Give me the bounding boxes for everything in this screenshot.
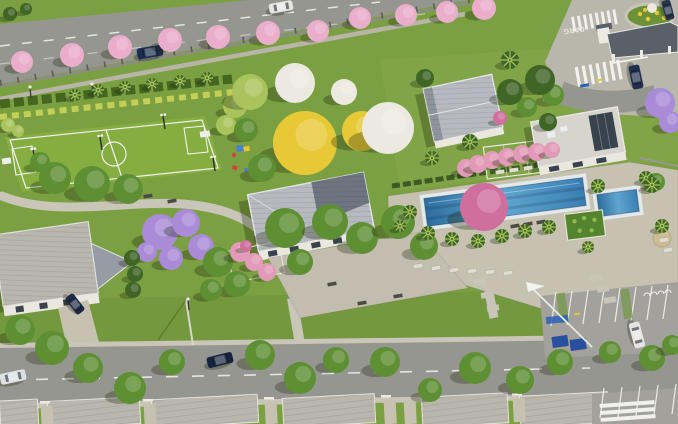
palm-crown [97, 89, 100, 92]
house-driveway-strip [513, 398, 526, 423]
palm-fronds [421, 226, 435, 240]
play-element-red [232, 153, 236, 157]
house-driveway-strip [144, 404, 157, 424]
palm-crown [151, 83, 154, 86]
house-driveway-strip [41, 406, 54, 424]
floodlight-head [34, 147, 37, 150]
tree-highlight [340, 82, 353, 95]
floodlight-head [101, 134, 104, 137]
gate-pillar [668, 46, 671, 54]
entrance-road [560, 92, 656, 102]
palm-fronds [445, 232, 459, 246]
tree-highlight [256, 344, 271, 359]
tree-highlight [167, 249, 179, 261]
floodlight-head [214, 155, 217, 158]
tree-highlight [357, 10, 368, 21]
tree-highlight [16, 127, 22, 133]
tree-highlight [556, 352, 569, 365]
tree-highlight [24, 5, 30, 11]
tree-highlight [144, 245, 154, 255]
tree-highlight [223, 118, 233, 128]
palm-crown [548, 226, 551, 229]
palm-fronds [201, 72, 213, 84]
house-driveway-strip [265, 402, 278, 424]
house-driveway-strip [384, 400, 397, 424]
tree-highlight [422, 71, 431, 80]
house-window [15, 306, 24, 313]
palm-crown [524, 230, 527, 233]
palm-crown [501, 235, 504, 238]
palm-crown [179, 80, 182, 83]
palm-crown [431, 157, 434, 160]
tree-highlight [289, 68, 309, 88]
house-driveway-strip [404, 400, 417, 424]
tree-highlight [536, 69, 551, 84]
tree-highlight [506, 82, 519, 95]
tree-highlight [295, 366, 311, 382]
tree-highlight [19, 54, 30, 65]
palm-fronds [92, 84, 104, 96]
tree-highlight [516, 370, 530, 384]
tree-highlight [332, 350, 345, 363]
flower-bed [643, 8, 647, 12]
tree-highlight [125, 376, 141, 392]
tree-highlight [498, 113, 505, 120]
tree-highlight [130, 252, 138, 260]
front-fence [40, 401, 50, 404]
aerial-community-render: CARG [0, 0, 678, 424]
tree-highlight [325, 209, 343, 227]
kids-pool-water [597, 189, 640, 216]
floodlight-head [160, 114, 163, 117]
palm-fronds [146, 78, 158, 90]
play-structure-blue [236, 145, 244, 152]
tree-highlight [182, 213, 196, 227]
tree-highlight [168, 352, 181, 365]
house-window [39, 302, 48, 309]
recycling-bin [551, 335, 568, 348]
floodlight-head [30, 148, 33, 151]
tree-highlight [6, 120, 13, 127]
palm-crown [477, 240, 480, 243]
tree-highlight [214, 28, 226, 40]
palm-fronds [425, 151, 439, 165]
crosswalk-parking [600, 400, 656, 422]
tree-highlight [545, 115, 554, 124]
tree-highlight [16, 319, 31, 334]
tree-highlight [477, 189, 501, 213]
palm-fronds [119, 81, 131, 93]
palm-crown [399, 225, 402, 228]
flower-bed [638, 12, 642, 16]
palm-fronds [495, 229, 509, 243]
palm-crown [597, 185, 600, 188]
tree-highlight [131, 284, 139, 292]
front-fence [381, 395, 391, 398]
render-canvas: CARG [0, 0, 678, 424]
tree-highlight [8, 9, 15, 16]
palm-crown [206, 77, 209, 80]
palm-crown [427, 232, 430, 235]
tree-highlight [87, 171, 105, 189]
tree-highlight [84, 357, 99, 372]
tree-highlight [475, 157, 484, 166]
palm-crown [661, 225, 664, 228]
roundabout-tree [647, 3, 657, 13]
tree-highlight [133, 268, 141, 276]
lamp-head [90, 82, 93, 85]
front-fence [143, 399, 153, 402]
flower-bed [646, 17, 650, 21]
play-structure-yellow [243, 146, 250, 152]
tree-highlight [357, 226, 373, 242]
front-fence [264, 397, 274, 400]
tree-highlight [656, 92, 671, 107]
palm-fronds [174, 75, 186, 87]
tree-highlight [251, 255, 260, 264]
palm-crown [451, 238, 454, 241]
tree-highlight [444, 4, 455, 15]
palm-fronds [471, 234, 485, 248]
tree-highlight [296, 252, 309, 265]
palm-fronds [69, 89, 81, 101]
tree-highlight [197, 237, 210, 250]
tree-highlight [667, 114, 678, 125]
tree-highlight [264, 24, 276, 36]
floodlight-head [210, 156, 213, 159]
palm-crown [587, 246, 590, 249]
tree-highlight [245, 79, 263, 97]
tree-highlight [264, 265, 273, 274]
tree-highlight [470, 356, 486, 372]
palm-fronds [501, 51, 519, 69]
tree-highlight [50, 166, 66, 182]
tree-highlight [124, 178, 139, 193]
palm-crown [74, 94, 77, 97]
tree-highlight [258, 158, 272, 172]
tree-highlight [315, 23, 326, 34]
tree-highlight [550, 144, 558, 152]
tree-highlight [381, 351, 396, 366]
tree-highlight [524, 100, 534, 110]
tree-highlight [426, 381, 438, 393]
palm-fronds [644, 177, 660, 193]
house-roof-ribs [0, 222, 98, 307]
gate-pillar [612, 54, 615, 62]
tree-highlight [233, 274, 246, 287]
palm-crown [651, 184, 654, 187]
tree-highlight [242, 121, 254, 133]
palm-crown [509, 59, 512, 62]
lamp-head [186, 297, 189, 300]
living-green-wall [565, 210, 606, 240]
floodlight-head [164, 113, 167, 116]
tree-highlight [47, 335, 64, 352]
palm-crown [409, 211, 412, 214]
palm-crown [469, 141, 472, 144]
tree-highlight [295, 119, 327, 151]
tree-highlight [166, 31, 178, 43]
palm-crown [124, 86, 127, 89]
tree-highlight [244, 242, 250, 248]
tree-highlight [279, 213, 299, 233]
tree-highlight [68, 46, 80, 58]
tree-highlight [380, 109, 406, 135]
goal-left [2, 157, 12, 164]
tree-highlight [208, 282, 219, 293]
floodlight-head [97, 135, 100, 138]
palm-fronds [403, 205, 417, 219]
tree-highlight [116, 38, 128, 50]
gate-pillar [640, 50, 643, 58]
tree-highlight [607, 344, 618, 355]
lamp-head [28, 85, 31, 88]
tree-highlight [37, 155, 47, 165]
tree-highlight [403, 7, 414, 18]
